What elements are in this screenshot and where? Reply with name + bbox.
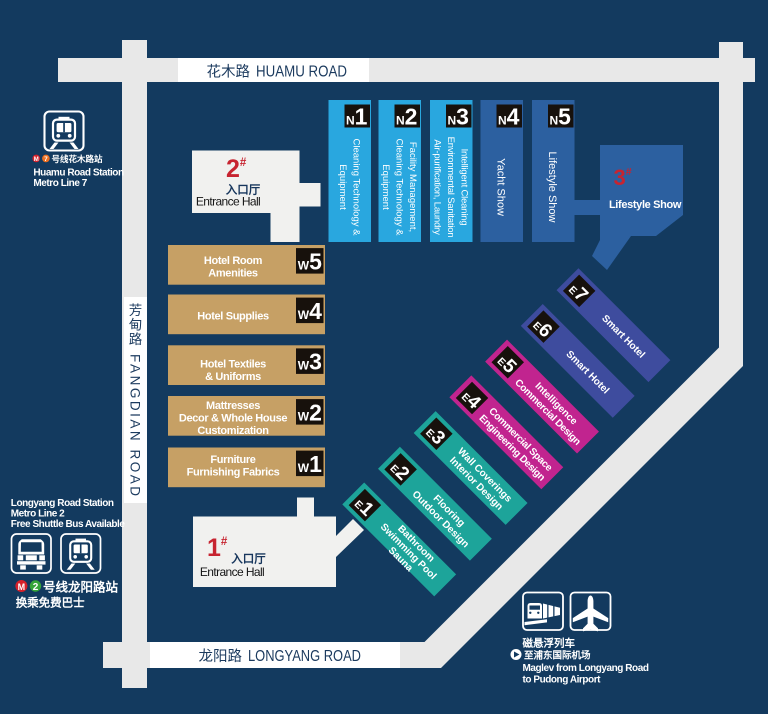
svg-text:龙阳路LONGYANG ROAD: 龙阳路LONGYANG ROAD — [199, 648, 362, 665]
svg-text:Yacht Show: Yacht Show — [495, 158, 507, 216]
svg-text:Hotel Supplies: Hotel Supplies — [197, 311, 269, 323]
svg-text:7: 7 — [44, 156, 48, 163]
svg-text:2: 2 — [33, 582, 39, 593]
svg-text:Cleaning Technology &: Cleaning Technology & — [394, 138, 405, 236]
svg-text:Cleaning Technology &: Cleaning Technology & — [351, 138, 362, 236]
svg-text:Free Shuttle Bus Available: Free Shuttle Bus Available — [11, 519, 126, 530]
svg-text:Hotel Room: Hotel Room — [204, 255, 263, 267]
svg-text:FANGDIAN ROAD: FANGDIAN ROAD — [128, 354, 143, 496]
svg-text:Furnishing Fabrics: Furnishing Fabrics — [187, 467, 280, 479]
svg-text:Amenities: Amenities — [208, 268, 258, 280]
svg-text:路: 路 — [129, 332, 143, 347]
svg-text:to Pudong Airport: to Pudong Airport — [523, 675, 602, 686]
svg-text:磁悬浮列车: 磁悬浮列车 — [523, 637, 576, 650]
svg-text:Metro Line 7: Metro Line 7 — [33, 178, 87, 189]
svg-text:至浦东国际机场: 至浦东国际机场 — [524, 650, 591, 662]
svg-text:换乘免费巴士: 换乘免费巴士 — [16, 596, 85, 610]
svg-text:Furniture: Furniture — [210, 454, 255, 466]
svg-text:Longyang Road Station: Longyang Road Station — [11, 498, 114, 509]
svg-text:甸: 甸 — [129, 318, 143, 333]
svg-text:Hotel Textiles: Hotel Textiles — [200, 359, 266, 371]
svg-text:Metro Line 2: Metro Line 2 — [11, 509, 65, 520]
svg-text:号线龙阳路站: 号线龙阳路站 — [43, 580, 119, 595]
svg-text:Equipment: Equipment — [380, 164, 391, 210]
svg-text:Customization: Customization — [197, 425, 269, 437]
svg-text:Entrance Hall: Entrance Hall — [196, 195, 260, 209]
svg-text:M: M — [18, 582, 26, 592]
svg-text:芳: 芳 — [129, 303, 143, 318]
svg-text:Environmental Sanitation: Environmental Sanitation — [445, 137, 456, 238]
svg-text:Lifestyle Show: Lifestyle Show — [546, 152, 558, 223]
svg-text:Maglev from Longyang Road: Maglev from Longyang Road — [523, 663, 649, 674]
svg-text:Facility Management,: Facility Management, — [407, 142, 418, 232]
svg-text:Entrance Hall: Entrance Hall — [200, 565, 264, 579]
svg-text:号线花木路站: 号线花木路站 — [52, 154, 104, 164]
svg-text:入口厅: 入口厅 — [231, 553, 266, 566]
svg-text:Mattresses: Mattresses — [206, 400, 260, 412]
svg-text:Lifestyle Show: Lifestyle Show — [609, 199, 682, 211]
svg-text:Decor & Whole House: Decor & Whole House — [179, 413, 287, 425]
svg-text:花木路HUAMU ROAD: 花木路HUAMU ROAD — [207, 64, 348, 81]
svg-text:Intelligent Cleaning: Intelligent Cleaning — [459, 149, 470, 226]
svg-text:M: M — [34, 157, 39, 163]
svg-text:Equipment: Equipment — [337, 164, 348, 210]
svg-text:& Uniforms: & Uniforms — [205, 371, 261, 383]
svg-text:Air-purification, Laundry: Air-purification, Laundry — [432, 139, 443, 235]
